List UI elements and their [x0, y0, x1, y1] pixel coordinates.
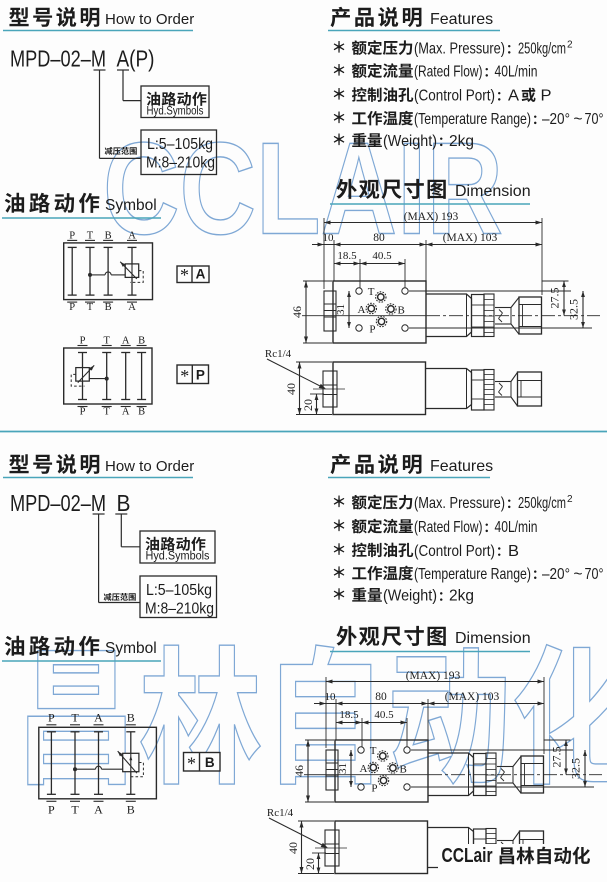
svg-text:20: 20	[303, 858, 317, 870]
svg-text:P: P	[369, 324, 375, 336]
svg-text:A: A	[128, 302, 136, 313]
svg-text:P: P	[48, 802, 55, 816]
svg-text:250kg/cm: 250kg/cm	[518, 495, 566, 512]
svg-text:How to Order: How to Order	[105, 458, 194, 475]
svg-text:Symbol: Symbol	[105, 197, 157, 214]
svg-text:2kg: 2kg	[449, 588, 474, 605]
svg-text:Rc1/4: Rc1/4	[265, 348, 292, 360]
svg-text:(Weight): (Weight)	[383, 133, 437, 150]
svg-text:18.5: 18.5	[337, 250, 357, 262]
svg-text:(MAX) 193: (MAX) 193	[404, 211, 459, 223]
svg-text:(Max. Pressure): (Max. Pressure)	[414, 41, 505, 58]
svg-text:–20°: –20°	[542, 566, 570, 583]
svg-text:40: 40	[286, 842, 300, 854]
svg-text:T: T	[103, 336, 110, 347]
svg-text:80: 80	[375, 691, 387, 703]
svg-text:A: A	[122, 407, 130, 418]
svg-text:46: 46	[292, 765, 306, 777]
svg-text:10: 10	[323, 232, 335, 244]
svg-text:A: A	[122, 336, 130, 347]
svg-text:A: A	[508, 88, 519, 105]
svg-text:A: A	[196, 267, 206, 282]
svg-text:B: B	[508, 543, 519, 560]
svg-text:P: P	[541, 88, 552, 105]
svg-text:20: 20	[301, 399, 315, 411]
svg-text:2: 2	[567, 494, 573, 505]
svg-text:27.5: 27.5	[548, 288, 562, 309]
svg-text:P: P	[48, 710, 55, 724]
svg-text:B: B	[105, 302, 112, 313]
svg-text:*: *	[187, 754, 196, 774]
svg-text:P: P	[69, 230, 75, 241]
svg-text:Dimension: Dimension	[455, 183, 531, 200]
svg-text:A: A	[128, 230, 136, 241]
svg-text:46: 46	[290, 306, 304, 318]
svg-text:80: 80	[373, 232, 385, 244]
svg-text:T: T	[368, 286, 375, 298]
svg-text:P: P	[80, 336, 86, 347]
svg-text:(Rated Flow): (Rated Flow)	[414, 64, 483, 81]
svg-text:32.5: 32.5	[569, 758, 583, 779]
svg-text:Hyd.Symbols: Hyd.Symbols	[147, 106, 204, 118]
svg-text:T: T	[370, 745, 377, 757]
svg-text:10: 10	[325, 691, 337, 703]
svg-text:(Weight): (Weight)	[383, 588, 437, 605]
svg-text:T: T	[87, 230, 94, 241]
svg-text:P: P	[69, 302, 75, 313]
svg-text:(MAX) 193: (MAX) 193	[406, 670, 461, 682]
svg-text:P: P	[371, 783, 377, 795]
svg-text:B: B	[105, 230, 112, 241]
svg-text:2kg: 2kg	[449, 133, 474, 150]
svg-text:B: B	[138, 336, 145, 347]
svg-text:Symbol: Symbol	[105, 640, 157, 657]
svg-text:T: T	[103, 407, 110, 418]
svg-text:70°: 70°	[585, 566, 604, 583]
svg-text:Rc1/4: Rc1/4	[267, 807, 294, 819]
svg-text:B: B	[398, 305, 405, 317]
svg-text:B: B	[117, 490, 131, 516]
svg-text:27.5: 27.5	[550, 747, 564, 768]
svg-text:M:8–210kg: M:8–210kg	[145, 601, 214, 618]
svg-text:M:8–210kg: M:8–210kg	[146, 155, 215, 172]
svg-text:Dimension: Dimension	[455, 630, 531, 647]
svg-text:B: B	[205, 755, 215, 770]
svg-text:CCLair: CCLair	[442, 845, 493, 867]
svg-text:A(P): A(P)	[117, 46, 155, 72]
svg-text:(Rated Flow): (Rated Flow)	[414, 519, 483, 536]
svg-text:40L/min: 40L/min	[495, 64, 538, 81]
svg-text:P: P	[80, 407, 86, 418]
svg-text:T: T	[87, 302, 94, 313]
svg-text:(Max. Pressure): (Max. Pressure)	[414, 495, 505, 512]
svg-text:250kg/cm: 250kg/cm	[518, 41, 566, 58]
svg-text:*: *	[180, 366, 189, 386]
svg-text:Features: Features	[430, 458, 493, 475]
svg-text:A: A	[94, 802, 103, 816]
svg-text:(Control Port): (Control Port)	[414, 543, 495, 560]
svg-text:A: A	[358, 304, 366, 316]
svg-text:31: 31	[335, 304, 347, 315]
svg-text:*: *	[180, 265, 189, 285]
svg-text:(Temperature Range): (Temperature Range)	[414, 111, 531, 128]
svg-text:2: 2	[567, 40, 573, 51]
svg-text:~: ~	[574, 566, 583, 583]
svg-text:MPD–02–M: MPD–02–M	[10, 46, 106, 72]
svg-text:(MAX) 103: (MAX) 103	[445, 691, 500, 703]
svg-text:How to Order: How to Order	[105, 11, 194, 28]
svg-text:L:5–105kg: L:5–105kg	[147, 136, 213, 153]
svg-text:(Control Port): (Control Port)	[414, 88, 495, 105]
svg-text:(Temperature Range): (Temperature Range)	[414, 566, 531, 583]
svg-text:~: ~	[574, 111, 583, 128]
svg-text:P: P	[196, 368, 205, 383]
svg-text:B: B	[127, 710, 135, 724]
svg-text:40L/min: 40L/min	[495, 519, 538, 536]
svg-text:B: B	[138, 407, 145, 418]
svg-text:(MAX) 103: (MAX) 103	[443, 232, 498, 244]
svg-text:–20°: –20°	[542, 111, 570, 128]
svg-text:MPD–02–M: MPD–02–M	[10, 490, 106, 516]
svg-text:A: A	[94, 710, 103, 724]
svg-text:T: T	[71, 710, 79, 724]
svg-text:Hyd.Symbols: Hyd.Symbols	[146, 551, 210, 563]
svg-text:31: 31	[337, 763, 349, 774]
svg-text:40: 40	[284, 383, 298, 395]
svg-text:70°: 70°	[585, 111, 604, 128]
svg-text:40.5: 40.5	[372, 250, 392, 262]
svg-text:B: B	[400, 764, 407, 776]
svg-text:B: B	[127, 802, 135, 816]
svg-text:32.5: 32.5	[567, 299, 581, 320]
svg-text:A: A	[360, 763, 368, 775]
svg-text:L:5–105kg: L:5–105kg	[146, 582, 212, 599]
svg-text:40.5: 40.5	[374, 709, 394, 721]
svg-text:18.5: 18.5	[339, 709, 359, 721]
svg-text:Features: Features	[430, 11, 493, 28]
svg-text:T: T	[71, 802, 79, 816]
